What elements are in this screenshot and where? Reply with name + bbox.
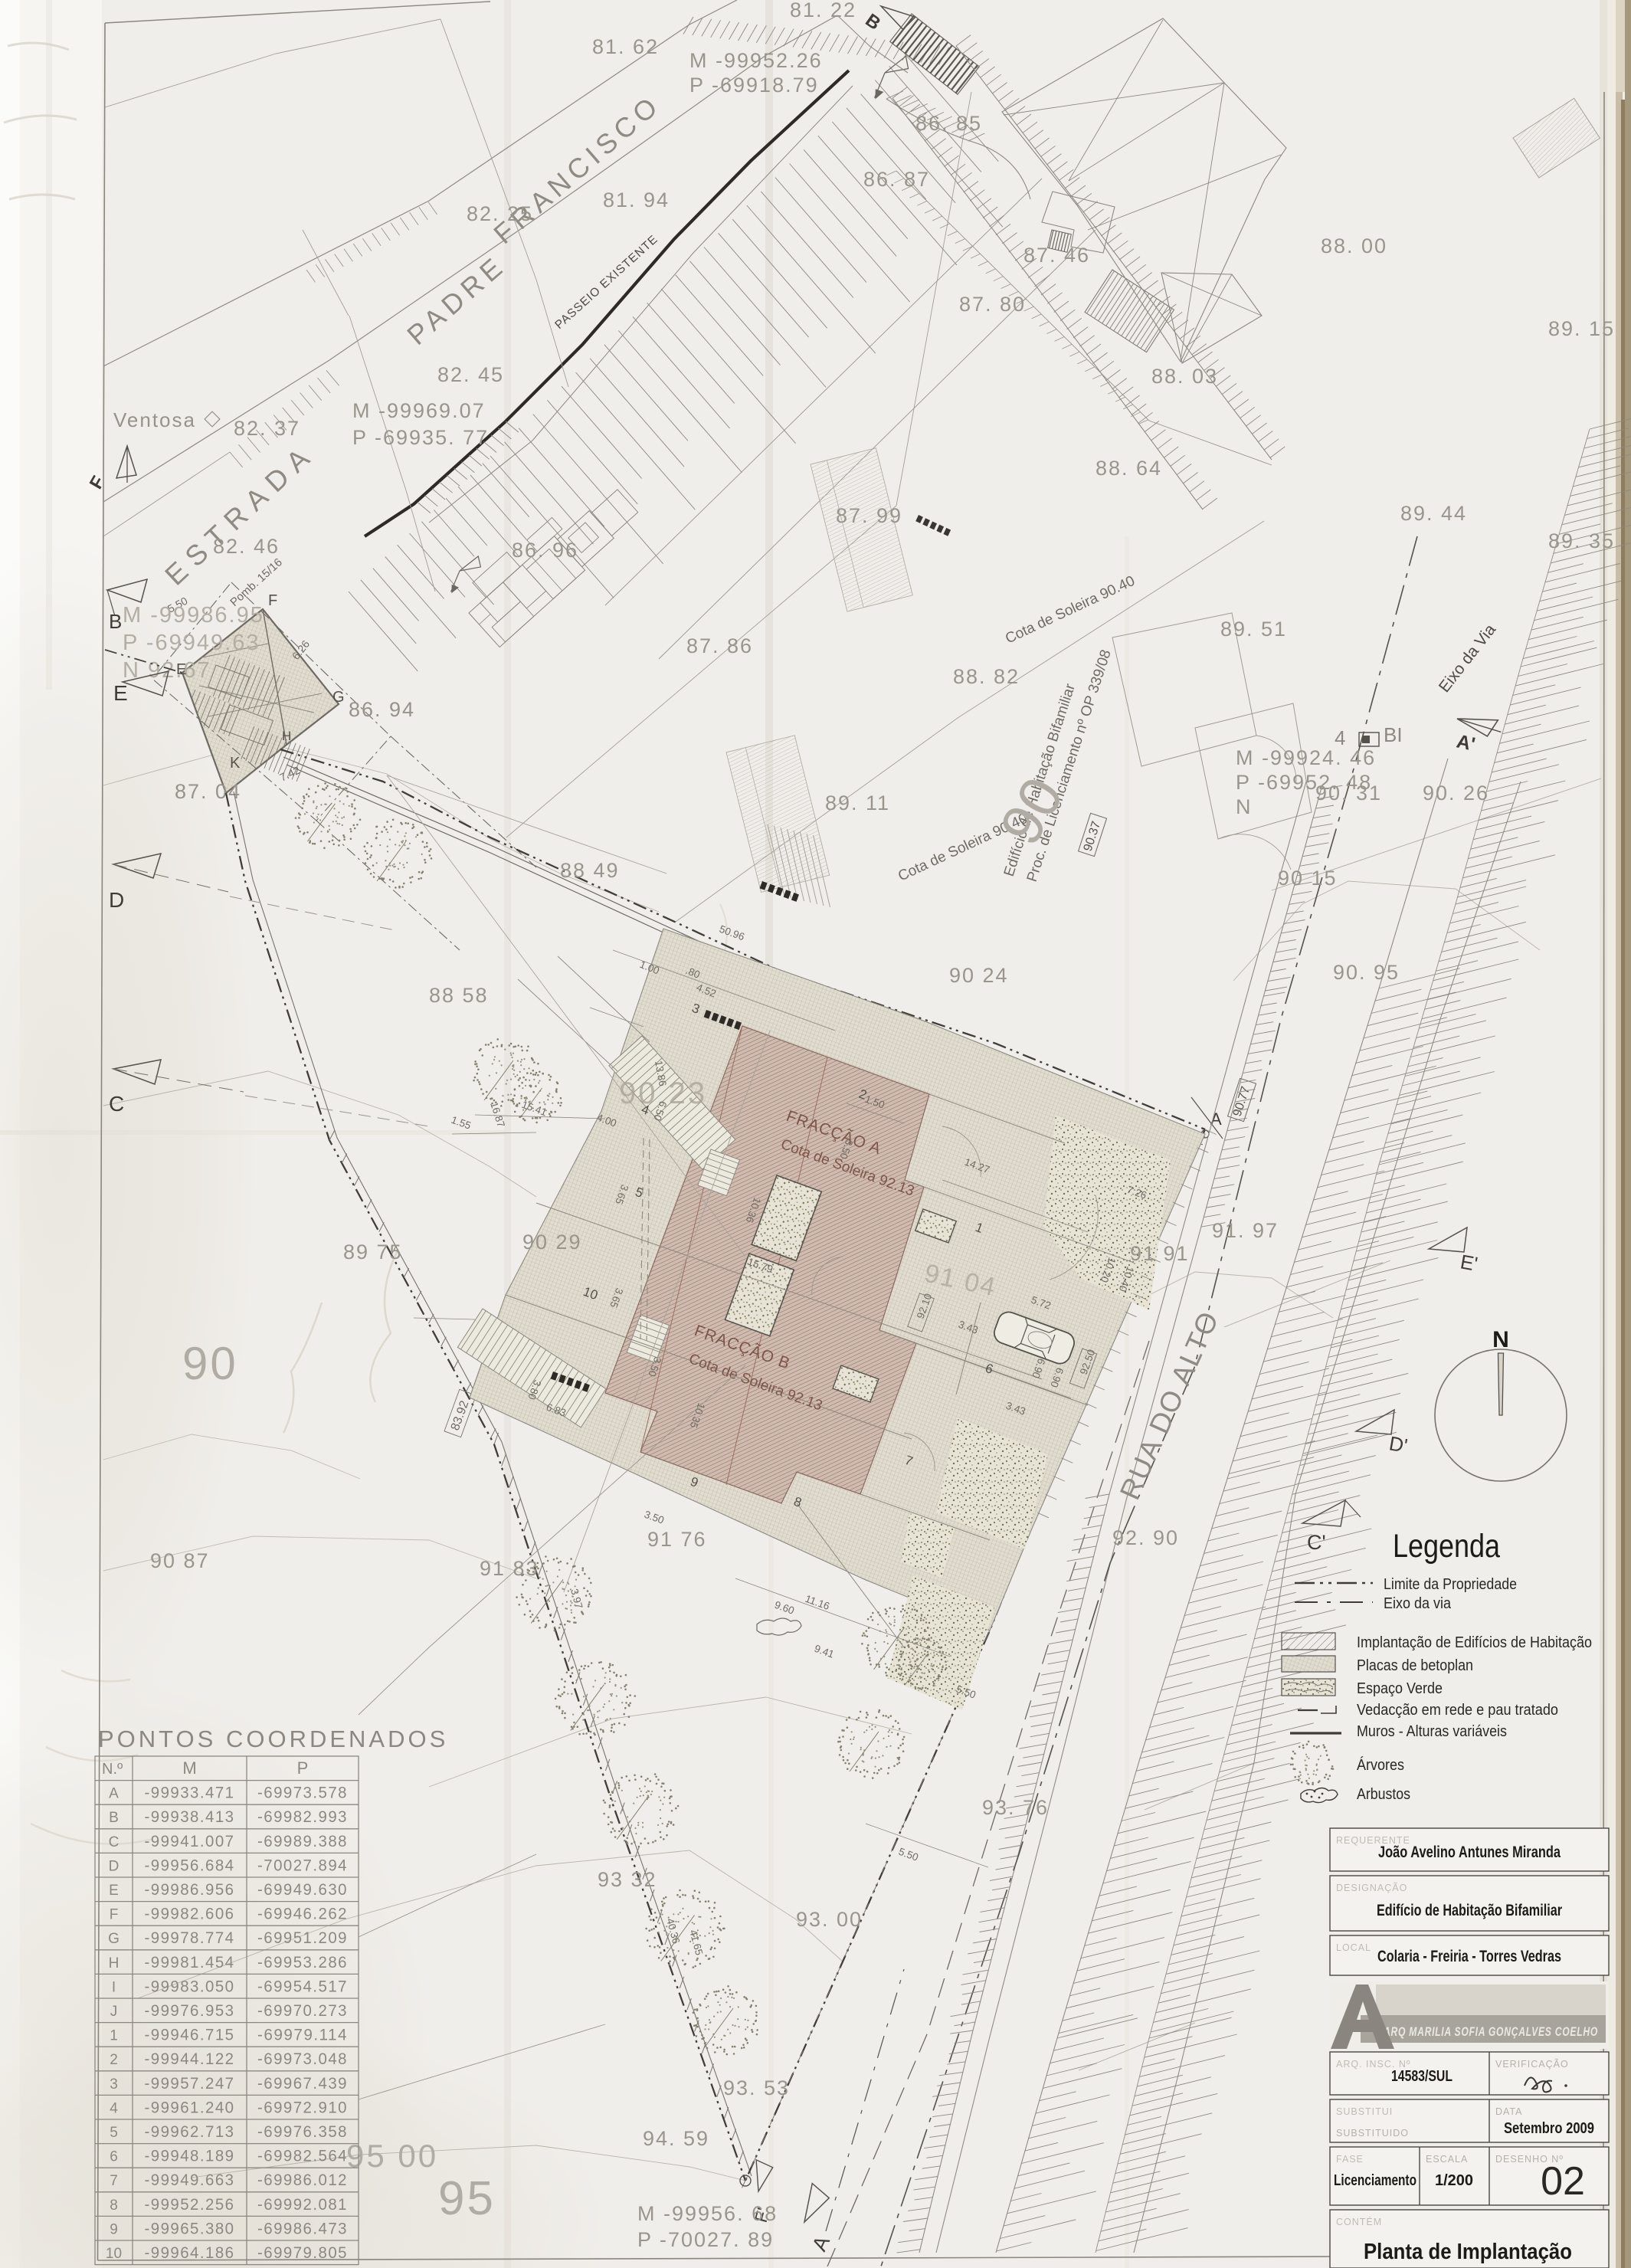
svg-text:P -69952. 48: P -69952. 48 — [1236, 771, 1372, 794]
svg-text:91 83: 91 83 — [480, 1557, 539, 1580]
svg-text:-99976.953: -99976.953 — [145, 2002, 235, 2020]
svg-text:Espaço Verde: Espaço Verde — [1357, 1680, 1443, 1697]
svg-text:ESCALA: ESCALA — [1426, 2154, 1468, 2165]
svg-text:-69951.209: -69951.209 — [257, 1929, 348, 1947]
svg-text:82. 45: 82. 45 — [437, 363, 504, 386]
svg-text:-99944.122: -99944.122 — [145, 2050, 235, 2068]
svg-text:-69979.114: -69979.114 — [257, 2027, 348, 2044]
svg-text:-69992.081: -69992.081 — [257, 2196, 348, 2214]
svg-text:-69973.048: -69973.048 — [257, 2050, 348, 2068]
svg-text:92. 90: 92. 90 — [1112, 1526, 1179, 1549]
svg-text:D: D — [109, 1858, 120, 1874]
svg-text:89. 44: 89. 44 — [1400, 502, 1467, 525]
svg-text:1: 1 — [110, 2028, 118, 2044]
svg-text:VERIFICAÇÃO: VERIFICAÇÃO — [1495, 2059, 1569, 2070]
svg-text:P: P — [297, 1758, 309, 1778]
svg-text:ARQ MARILIA SOFIA GONÇALVES CO: ARQ MARILIA SOFIA GONÇALVES COELHO — [1383, 2024, 1598, 2039]
svg-text:Eixo da via: Eixo da via — [1384, 1595, 1452, 1612]
svg-text:-99965.380: -99965.380 — [145, 2220, 235, 2237]
svg-text:-99983.050: -99983.050 — [145, 1978, 235, 1995]
svg-text:86. 96: 86. 96 — [512, 539, 578, 562]
svg-text:Licenciamento: Licenciamento — [1334, 2172, 1416, 2189]
svg-text:9: 9 — [110, 2221, 118, 2237]
svg-text:E: E — [113, 681, 128, 705]
svg-text:F: F — [268, 592, 277, 609]
svg-text:89. 11: 89. 11 — [825, 792, 890, 814]
svg-text:SUBSTITUIDO: SUBSTITUIDO — [1336, 2128, 1409, 2139]
svg-text:N.º: N.º — [102, 1761, 123, 1778]
svg-text:H: H — [282, 729, 291, 743]
svg-text:93. 76: 93. 76 — [982, 1796, 1049, 1819]
svg-text:5: 5 — [110, 2125, 118, 2141]
svg-text:90. 95: 90. 95 — [1333, 961, 1400, 984]
svg-text:P -69918.79: P -69918.79 — [689, 74, 819, 97]
svg-text:87. 04: 87. 04 — [175, 780, 241, 803]
svg-text:-69970.273: -69970.273 — [257, 2002, 348, 2020]
svg-text:90 87: 90 87 — [150, 1549, 210, 1572]
svg-text:H: H — [109, 1955, 120, 1971]
svg-text:G: G — [108, 1931, 120, 1947]
svg-text:87. 80: 87. 80 — [959, 293, 1026, 316]
svg-text:02: 02 — [1541, 2159, 1585, 2204]
svg-text:-69986.473: -69986.473 — [257, 2220, 348, 2237]
svg-text:P -70027. 89: P -70027. 89 — [637, 2228, 774, 2251]
svg-text:88. 00: 88. 00 — [1321, 234, 1387, 257]
svg-text:D: D — [109, 888, 124, 912]
svg-text:88 49: 88 49 — [560, 859, 620, 882]
svg-text:Legenda: Legenda — [1393, 1528, 1500, 1565]
svg-text:-69982.564: -69982.564 — [257, 2148, 348, 2165]
svg-text:82. 46: 82. 46 — [213, 535, 280, 558]
svg-text:88 58: 88 58 — [429, 984, 489, 1007]
svg-text:-99962.713: -99962.713 — [145, 2123, 235, 2141]
svg-text:-69953.286: -69953.286 — [257, 1954, 348, 1971]
svg-text:K: K — [230, 755, 241, 772]
svg-text:93. 53: 93. 53 — [723, 2076, 790, 2099]
svg-text:Planta de Implantação: Planta de Implantação — [1364, 2240, 1572, 2264]
svg-text:81. 94: 81. 94 — [603, 188, 670, 211]
svg-text:Setembro 2009: Setembro 2009 — [1504, 2120, 1594, 2137]
svg-text:1/200: 1/200 — [1435, 2172, 1473, 2189]
svg-text:A: A — [109, 1786, 119, 1802]
svg-text:8: 8 — [110, 2198, 118, 2214]
svg-text:M -99956. 68: M -99956. 68 — [637, 2202, 778, 2225]
svg-text:SUBSTITUI: SUBSTITUI — [1336, 2106, 1393, 2117]
svg-text:Árvores: Árvores — [1357, 1756, 1404, 1774]
svg-text:87. 46: 87. 46 — [1023, 244, 1090, 267]
svg-text:PONTOS COORDENADOS: PONTOS COORDENADOS — [98, 1726, 448, 1752]
svg-text:P -69949.63: P -69949.63 — [123, 631, 260, 655]
svg-text:G: G — [332, 689, 345, 706]
svg-text:-69989.388: -69989.388 — [257, 1833, 348, 1850]
svg-text:81. 22: 81. 22 — [790, 0, 856, 21]
svg-text:C': C' — [1307, 1531, 1326, 1554]
svg-text:86. 85: 86. 85 — [915, 112, 982, 135]
svg-text:M -99924. 46: M -99924. 46 — [1236, 746, 1376, 769]
svg-text:14583/SUL: 14583/SUL — [1391, 2068, 1453, 2085]
svg-text:Vedacção em rede e pau tratado: Vedacção em rede e pau tratado — [1357, 1702, 1558, 1719]
svg-text:N: N — [1236, 795, 1253, 818]
svg-text:93. 00: 93. 00 — [796, 1908, 863, 1931]
svg-text:87. 99: 87. 99 — [836, 504, 902, 527]
svg-text:C: C — [109, 1834, 120, 1850]
svg-text:81. 62: 81. 62 — [592, 35, 659, 58]
svg-text:91 76: 91 76 — [647, 1528, 707, 1551]
svg-text:-99957.247: -99957.247 — [145, 2075, 235, 2093]
svg-text:-69949.630: -69949.630 — [257, 1881, 348, 1899]
svg-text:86. 87: 86. 87 — [863, 168, 930, 191]
svg-text:-99961.240: -99961.240 — [145, 2099, 235, 2116]
svg-text:7: 7 — [110, 2173, 118, 2189]
svg-text:DATA: DATA — [1495, 2106, 1522, 2117]
svg-text:82. 37: 82. 37 — [234, 417, 300, 440]
svg-text:P -69935. 77: P -69935. 77 — [352, 426, 489, 449]
svg-text:-99941.007: -99941.007 — [145, 1833, 235, 1850]
svg-text:J: J — [110, 2004, 118, 2020]
svg-text:M -99969.07: M -99969.07 — [352, 399, 486, 422]
svg-text:89. 15: 89. 15 — [1548, 317, 1615, 340]
svg-text:90 29: 90 29 — [522, 1231, 582, 1254]
svg-text:-69976.358: -69976.358 — [257, 2123, 348, 2141]
svg-text:B: B — [109, 1810, 119, 1826]
svg-text:89. 35: 89. 35 — [1548, 529, 1615, 552]
svg-text:93 32: 93 32 — [598, 1868, 657, 1891]
svg-text:91 91: 91 91 — [1130, 1242, 1190, 1265]
svg-text:95: 95 — [438, 2172, 496, 2225]
svg-text:M: M — [182, 1758, 196, 1778]
svg-text:Edifício de Habitação Bifamili: Edifício de Habitação Bifamiliar — [1377, 1902, 1562, 1919]
svg-text:6: 6 — [110, 2149, 118, 2165]
svg-text:3: 3 — [110, 2076, 118, 2093]
svg-text:90 23: 90 23 — [619, 1077, 707, 1110]
svg-text:-69979.805: -69979.805 — [257, 2244, 348, 2262]
svg-text:95 00: 95 00 — [346, 2138, 438, 2174]
svg-text:88. 03: 88. 03 — [1151, 365, 1218, 388]
svg-text:86. 94: 86. 94 — [349, 698, 415, 721]
svg-text:89. 51: 89. 51 — [1220, 618, 1287, 641]
svg-text:Limite da Propriedade: Limite da Propriedade — [1384, 1576, 1517, 1593]
svg-text:-69972.910: -69972.910 — [257, 2099, 348, 2116]
svg-text:-99964.186: -99964.186 — [145, 2244, 235, 2262]
svg-text:E: E — [176, 661, 186, 678]
svg-text:C: C — [109, 1092, 124, 1116]
svg-text:-69954.517: -69954.517 — [257, 1978, 348, 1995]
svg-text:82. 25: 82. 25 — [467, 202, 533, 225]
svg-text:BI: BI — [1384, 723, 1403, 746]
svg-text:-99981.454: -99981.454 — [145, 1954, 235, 1971]
svg-text:CONTÉM: CONTÉM — [1336, 2216, 1382, 2227]
svg-text:M -99986.95: M -99986.95 — [123, 603, 264, 628]
svg-text:94. 59: 94. 59 — [643, 2127, 709, 2150]
svg-text:DESIGNAÇÃO: DESIGNAÇÃO — [1336, 1883, 1407, 1893]
svg-text:-69967.439: -69967.439 — [257, 2075, 348, 2093]
svg-text:88. 82: 88. 82 — [953, 665, 1020, 688]
svg-text:90 24: 90 24 — [949, 964, 1009, 987]
svg-text:-69973.578: -69973.578 — [257, 1785, 348, 1802]
svg-text:90: 90 — [182, 1338, 238, 1389]
svg-text:90 15: 90 15 — [1278, 867, 1338, 890]
svg-text:F: F — [110, 1907, 119, 1923]
svg-text:-70027.894: -70027.894 — [257, 1857, 348, 1874]
svg-text:-99982.606: -99982.606 — [145, 1906, 235, 1923]
svg-text:Implantação de Edifícios de Ha: Implantação de Edifícios de Habitação — [1357, 1634, 1592, 1651]
svg-text:Ventosa: Ventosa — [113, 408, 196, 431]
svg-text:-99952.256: -99952.256 — [145, 2196, 235, 2214]
svg-text:Placas de betoplan: Placas de betoplan — [1357, 1657, 1473, 1674]
svg-text:-99949.663: -99949.663 — [145, 2171, 235, 2189]
svg-text:N: N — [1492, 1327, 1509, 1352]
svg-text:91. 97: 91. 97 — [1212, 1219, 1279, 1242]
svg-text:-99946.715: -99946.715 — [145, 2027, 235, 2044]
svg-text:-99933.471: -99933.471 — [145, 1785, 235, 1802]
svg-text:Colaria - Freiria - Torres Ved: Colaria - Freiria - Torres Vedras — [1377, 1948, 1561, 1965]
svg-text:-69982.993: -69982.993 — [257, 1808, 348, 1826]
svg-text:-99986.956: -99986.956 — [145, 1881, 235, 1899]
svg-text:-99956.684: -99956.684 — [145, 1857, 235, 1874]
svg-text:-69986.012: -69986.012 — [257, 2171, 348, 2189]
svg-text:B: B — [109, 610, 122, 633]
svg-text:M -99952.26: M -99952.26 — [689, 49, 823, 72]
svg-text:E: E — [109, 1883, 119, 1899]
svg-text:A: A — [1210, 1109, 1222, 1129]
svg-text:João Avelino Antunes Miranda: João Avelino Antunes Miranda — [1378, 1844, 1561, 1861]
svg-text:89 75: 89 75 — [343, 1241, 403, 1263]
svg-text:I: I — [112, 1979, 116, 1995]
svg-text:LOCAL: LOCAL — [1336, 1942, 1371, 1953]
svg-text:90. 26: 90. 26 — [1423, 782, 1489, 805]
svg-text:10: 10 — [106, 2246, 122, 2262]
svg-text:Muros - Alturas variáveis: Muros - Alturas variáveis — [1357, 1723, 1507, 1740]
svg-text:-99948.189: -99948.189 — [145, 2148, 235, 2165]
svg-text:-99938.413: -99938.413 — [145, 1808, 235, 1826]
svg-text:FASE: FASE — [1336, 2154, 1364, 2165]
svg-text:-69946.262: -69946.262 — [257, 1906, 348, 1923]
svg-text:2: 2 — [110, 2052, 118, 2068]
svg-text:88. 64: 88. 64 — [1096, 457, 1162, 480]
svg-text:87. 86: 87. 86 — [686, 634, 753, 657]
svg-text:4: 4 — [110, 2100, 118, 2116]
svg-text:Arbustos: Arbustos — [1357, 1786, 1410, 1803]
svg-text:-99978.774: -99978.774 — [145, 1929, 235, 1947]
